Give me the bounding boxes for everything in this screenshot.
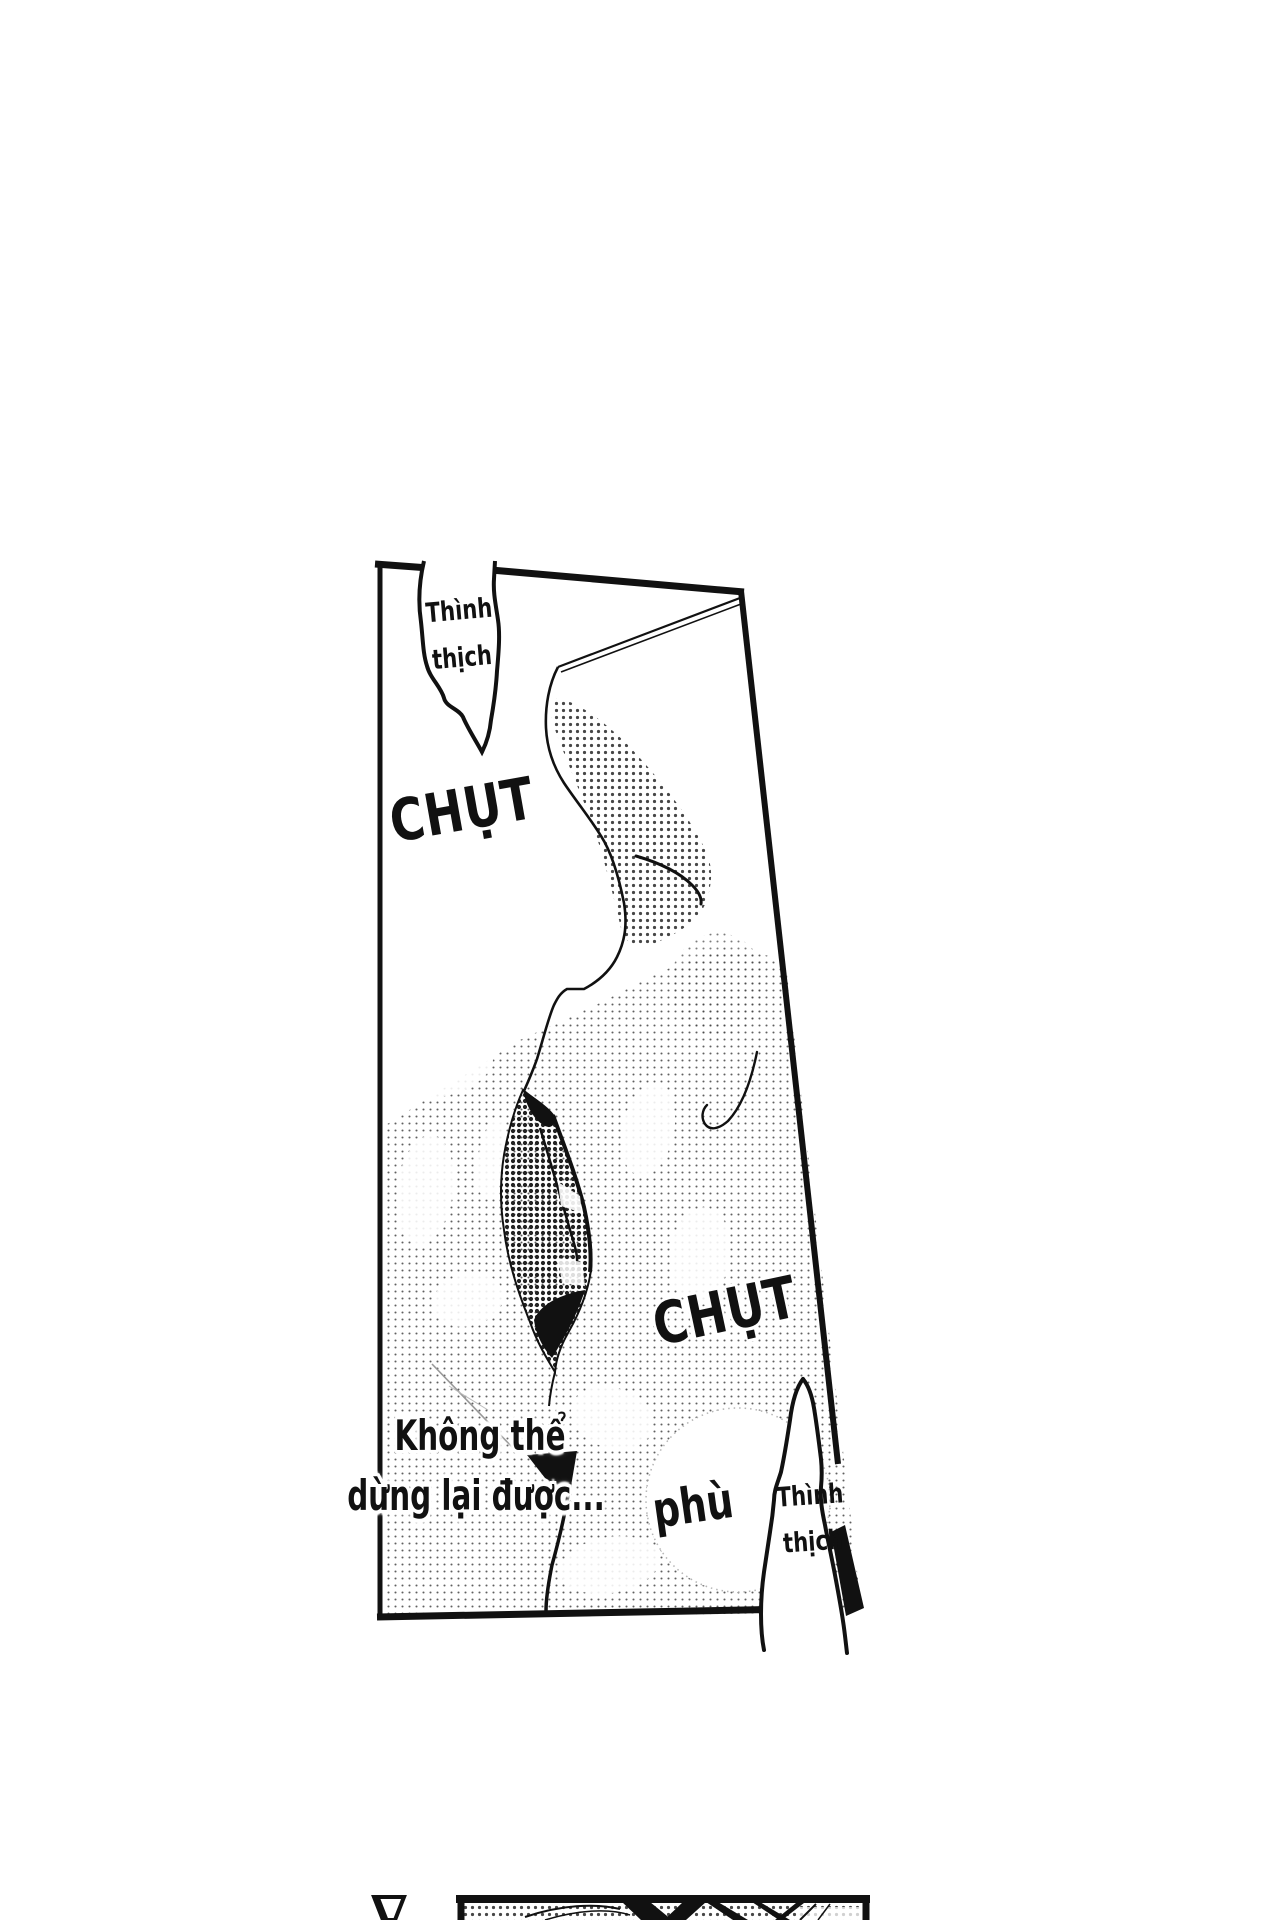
bubble-top-text-line1: Thình xyxy=(425,595,494,628)
tone-patch xyxy=(670,933,766,1037)
panel-artwork xyxy=(0,0,1280,1920)
narration-line1: Không thể xyxy=(394,1415,565,1457)
narration-line2: dừng lại được... xyxy=(347,1475,605,1517)
bubble-bottom-text-line2: thịch xyxy=(782,1526,844,1557)
bubble-top-text-line2: thịch xyxy=(431,642,493,674)
bubble-bottom-text-line1: Thình xyxy=(776,1480,844,1512)
bottom-panel xyxy=(456,1899,870,1920)
sfx-breath: phù xyxy=(650,1476,737,1536)
manga-page: Thình thịch CHỤT CHỤT phù Thình thịch Kh… xyxy=(0,0,1280,1920)
bubble-tail-fragment xyxy=(374,1897,404,1920)
